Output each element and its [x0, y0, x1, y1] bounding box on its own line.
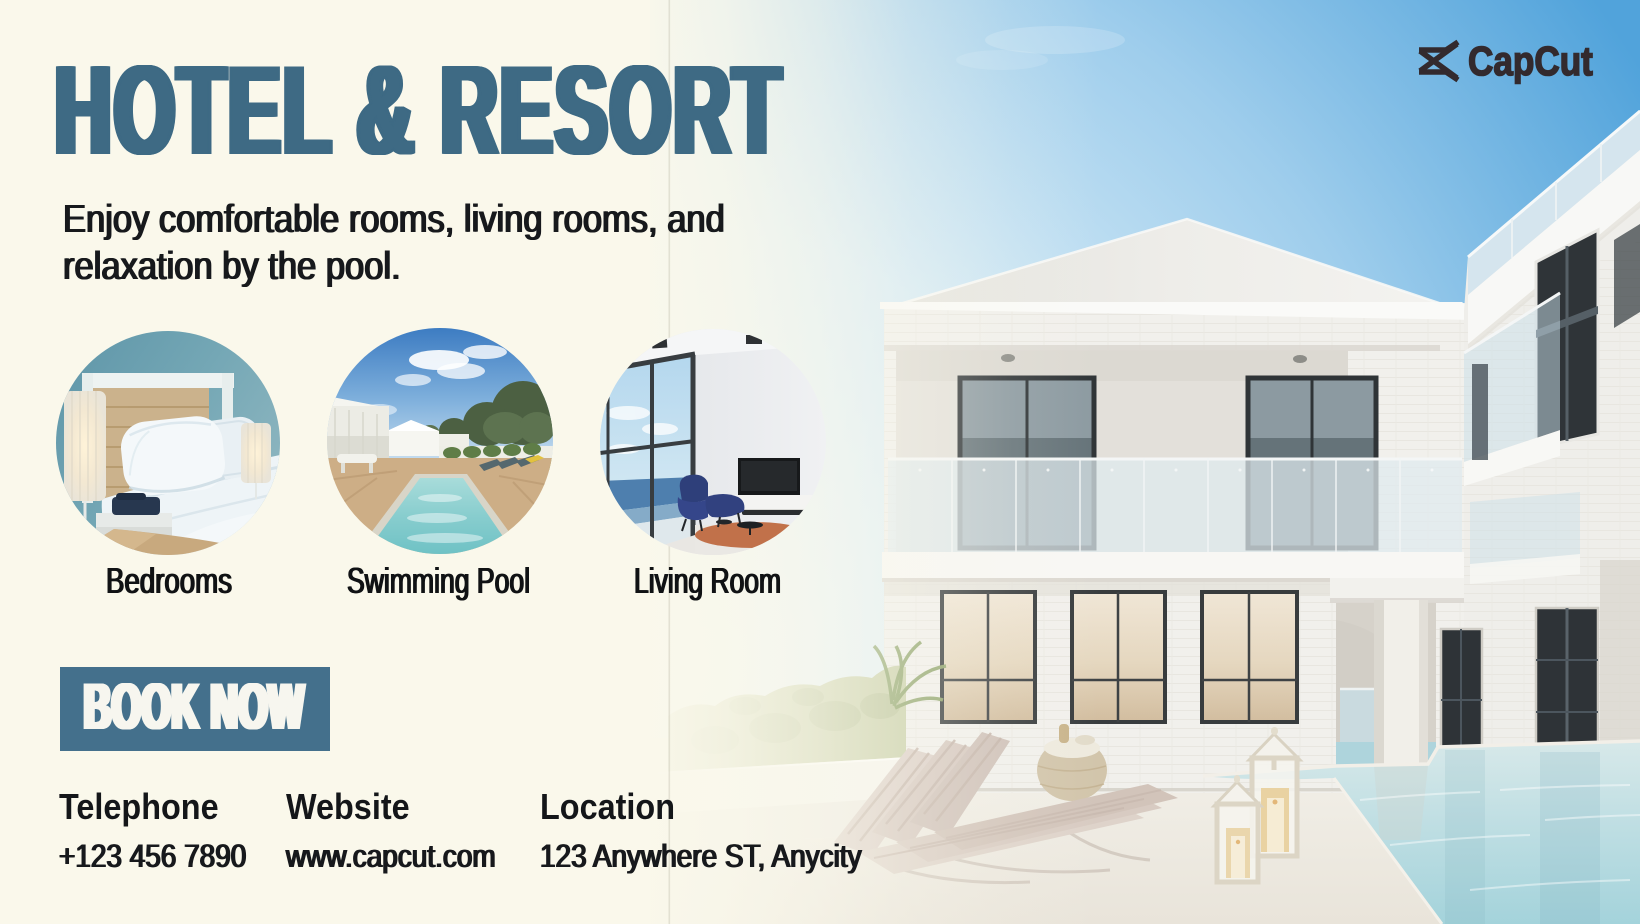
svg-text:CapCut: CapCut: [1468, 38, 1593, 84]
